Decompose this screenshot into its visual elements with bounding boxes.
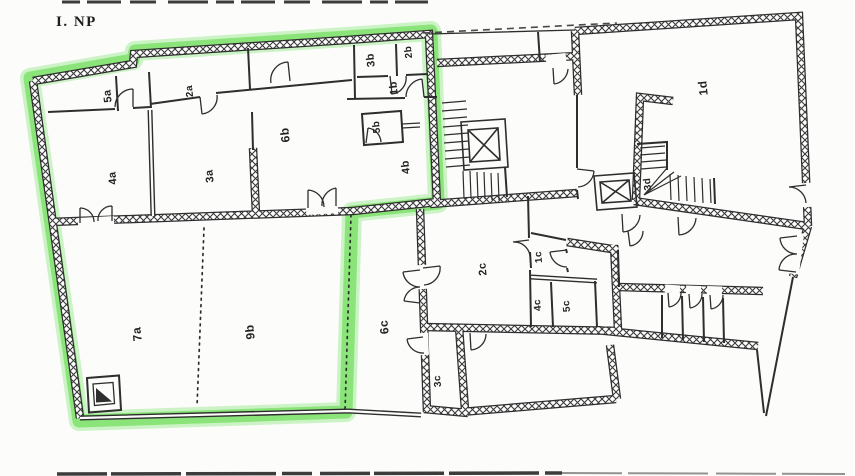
- room-label-3d: 3d: [642, 177, 654, 191]
- scan-artifacts: [57, 2, 845, 474]
- elevator-3d: [594, 173, 637, 210]
- dotted-dividers: [197, 215, 351, 411]
- room-label-2b: 2b: [403, 45, 415, 59]
- room-label-5c: 5c: [561, 299, 573, 312]
- room-label-4a: 4a: [106, 171, 119, 185]
- room-label-5b: 5b: [371, 120, 383, 134]
- divider-7a-9b: [197, 228, 204, 407]
- room-label-9b: 9b: [242, 324, 257, 340]
- shaft-outer-frame: [87, 376, 121, 413]
- room-label-7a: 7a: [129, 326, 144, 342]
- room-label-4c: 4c: [532, 298, 544, 311]
- room-label-5a: 5a: [101, 89, 114, 103]
- room-label-3a: 3a: [203, 169, 216, 183]
- main-elevator: [461, 119, 508, 170]
- room-label-1c: 1c: [533, 250, 545, 263]
- scan-edge-bottom: [57, 473, 562, 474]
- room-label-2c: 2c: [476, 262, 489, 276]
- plan-title: I. NP: [56, 14, 97, 31]
- door-arc: [553, 68, 806, 309]
- room-label-3c: 3c: [432, 374, 444, 387]
- shaft-fill-triangle: [96, 388, 112, 403]
- scan-edge-bottom-right: [562, 473, 845, 474]
- room-label-6b: 6b: [277, 127, 292, 143]
- door-opening: [665, 289, 722, 291]
- shaft-symbol: [87, 376, 121, 413]
- room-label-3b: 3b: [364, 52, 377, 67]
- room-label-2a: 2a: [184, 84, 196, 97]
- room-label-4b: 4b: [399, 159, 412, 174]
- stair-treads: [640, 146, 711, 203]
- room-label-1b: 1b: [387, 80, 400, 95]
- floor-plan-scan: I. NP 5a2a4a3a6b3b2b1b5b4b1d3d2c1c4c5c7a…: [0, 0, 855, 476]
- elevator-shaft-icon: [594, 173, 637, 210]
- elevator-shaft-icon: [461, 119, 508, 170]
- room-label-1d: 1d: [695, 80, 710, 96]
- room-label-6c: 6c: [376, 319, 391, 335]
- staircase-3d: [640, 146, 711, 203]
- floor-plan-drawing: [0, 0, 855, 476]
